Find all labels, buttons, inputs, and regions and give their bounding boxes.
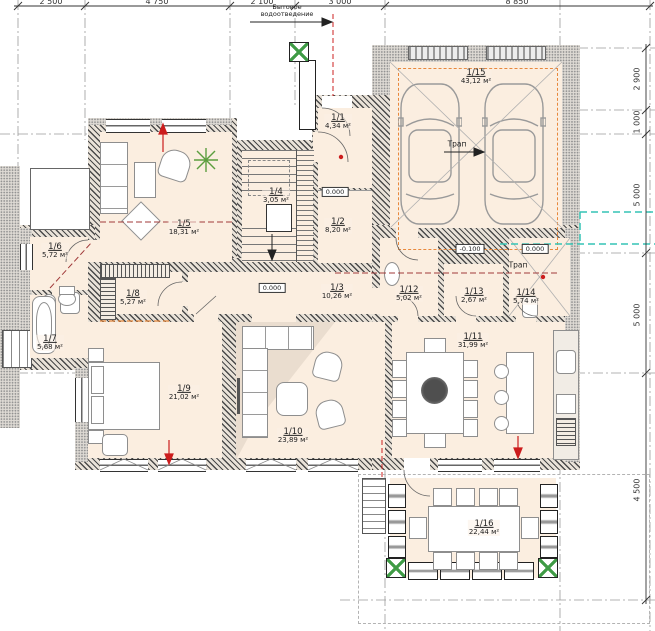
annotation-overlay xyxy=(0,0,655,631)
room-label-1-15: 1/1543,12 м² xyxy=(460,69,492,85)
room-label-1-12: 1/125,02 м² xyxy=(395,286,423,302)
room-label-1-14: 1/145,74 м² xyxy=(512,289,540,305)
drain-label-shower: Трап xyxy=(509,261,528,270)
room-label-1-4: 1/43,05 м² xyxy=(262,188,290,204)
dim-top-5: 8 850 xyxy=(506,0,529,6)
window-opening-marks xyxy=(100,459,358,470)
dim-right-3: 5 000 xyxy=(633,184,642,207)
dim-right-5: 4 500 xyxy=(633,479,642,502)
level-mark-minus: -0.100 xyxy=(456,244,485,254)
room-label-1-6: 1/65,72 м² xyxy=(41,243,69,259)
room-label-1-16: 1/1622,44 м² xyxy=(468,520,500,536)
stair-direction-arrow xyxy=(268,234,276,260)
room-label-1-3: 1/310,26 м² xyxy=(321,284,353,300)
room-label-1-5: 1/518,31 м² xyxy=(168,220,200,236)
dim-top-4: 3 000 xyxy=(329,0,352,6)
dim-top-2: 4 750 xyxy=(146,0,169,6)
dim-right-2: 1 000 xyxy=(633,111,642,134)
room-label-1-11: 1/1131,99 м² xyxy=(457,333,489,349)
utility-dashed-lines xyxy=(50,222,560,288)
water-lines xyxy=(500,212,655,244)
room-label-1-1: 1/14,34 м² xyxy=(324,114,352,130)
level-mark-zero: 0.000 xyxy=(322,187,349,197)
room-label-1-8: 1/85,27 м² xyxy=(119,290,147,306)
drain-label-garage: Трап xyxy=(448,140,467,149)
dim-right-4: 5 000 xyxy=(633,304,642,327)
level-mark-zero: 0.000 xyxy=(259,283,286,293)
room-label-1-10: 1/1023,89 м² xyxy=(277,428,309,444)
sewer-note-arrow xyxy=(250,18,332,26)
floor-plan-canvas: 2 500 4 750 2 100 3 000 8 850 2 900 1 00… xyxy=(0,0,655,631)
room-label-1-7: 1/75,68 м² xyxy=(36,335,64,351)
drain-arrow xyxy=(444,148,484,156)
room-label-1-9: 1/921,02 м² xyxy=(168,385,200,401)
room-label-1-2: 1/28,20 м² xyxy=(324,218,352,234)
room-label-1-13: 1/132,67 м² xyxy=(460,288,488,304)
sewer-note: Бытовое водоотведение xyxy=(252,4,322,18)
dim-right-1: 2 900 xyxy=(633,68,642,91)
dim-top-1: 2 500 xyxy=(40,0,63,6)
sewer-riser-lines xyxy=(333,14,382,478)
level-mark-zero: 0.000 xyxy=(522,244,549,254)
dimension-chains xyxy=(14,2,654,604)
